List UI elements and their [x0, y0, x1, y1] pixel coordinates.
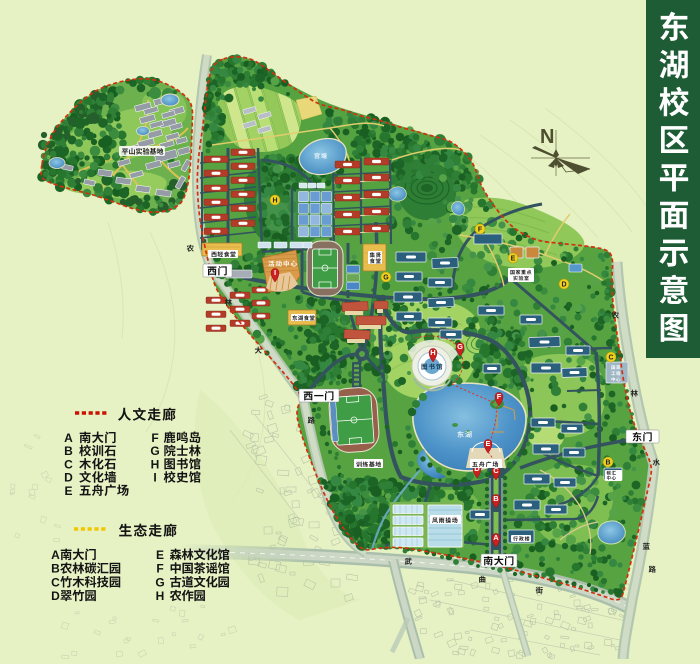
svg-text:E: E: [156, 548, 164, 562]
svg-text:D: D: [561, 282, 566, 289]
svg-text:F: F: [478, 227, 483, 234]
svg-text:G: G: [457, 342, 463, 351]
svg-text:H: H: [272, 198, 277, 205]
svg-text:N: N: [540, 126, 554, 148]
svg-text:A: A: [493, 533, 499, 542]
svg-text:F: F: [151, 431, 158, 445]
svg-text:C: C: [51, 575, 60, 589]
svg-text:D: D: [64, 471, 73, 485]
svg-text:H: H: [156, 589, 165, 603]
svg-text:C: C: [64, 457, 73, 471]
svg-text:I: I: [153, 471, 156, 485]
svg-text:B: B: [493, 494, 499, 503]
svg-text:B: B: [605, 460, 610, 467]
svg-text:C: C: [608, 355, 613, 362]
svg-text:F: F: [156, 562, 163, 576]
svg-text:H: H: [430, 348, 435, 357]
svg-text:F: F: [497, 392, 502, 401]
svg-text:E: E: [485, 439, 490, 448]
svg-text:A: A: [51, 548, 60, 562]
svg-text:G: G: [150, 444, 159, 458]
svg-text:A: A: [64, 431, 73, 445]
svg-text:B: B: [51, 562, 60, 576]
svg-text:E: E: [511, 256, 516, 263]
svg-text:B: B: [64, 444, 73, 458]
svg-text:H: H: [151, 457, 160, 471]
svg-text:I: I: [274, 268, 276, 277]
svg-text:G: G: [383, 275, 389, 282]
svg-text:E: E: [64, 484, 72, 498]
svg-text:D: D: [51, 589, 60, 603]
svg-text:G: G: [155, 575, 164, 589]
